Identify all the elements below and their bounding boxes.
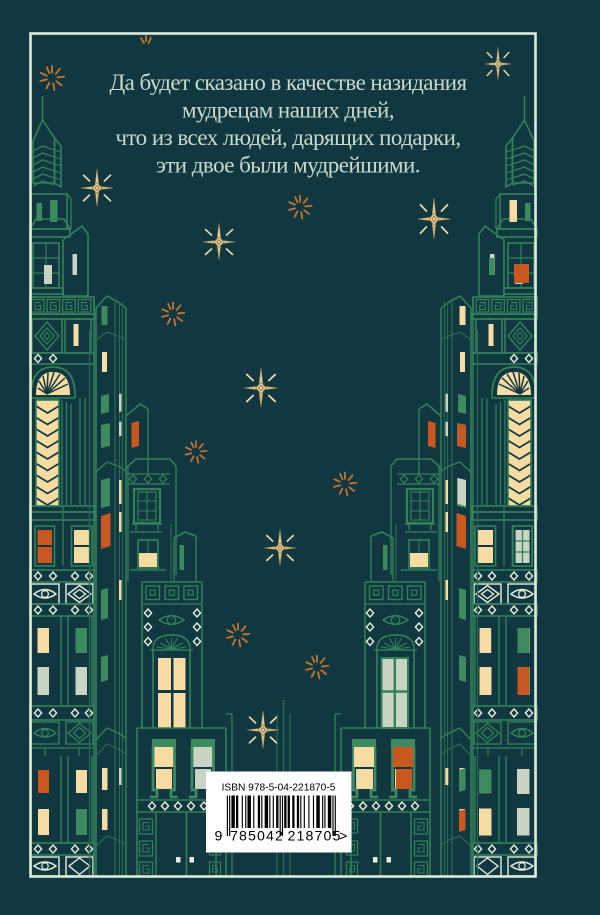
svg-text:мудрецам наших дней,: мудрецам наших дней, <box>182 98 394 123</box>
svg-text:218705: 218705 <box>288 829 342 845</box>
svg-text:>: > <box>339 829 347 845</box>
svg-text:9: 9 <box>215 829 223 845</box>
svg-text:эти двое были мудрейшими.: эти двое были мудрейшими. <box>156 153 420 178</box>
svg-text:что из всех людей, дарящих под: что из всех людей, дарящих подарки, <box>115 125 460 150</box>
svg-text:ISBN 978-5-04-221870-5: ISBN 978-5-04-221870-5 <box>222 783 336 794</box>
svg-text:785042: 785042 <box>230 829 284 845</box>
svg-text:Да будет сказано в качестве на: Да будет сказано в качестве назидания <box>109 70 467 95</box>
